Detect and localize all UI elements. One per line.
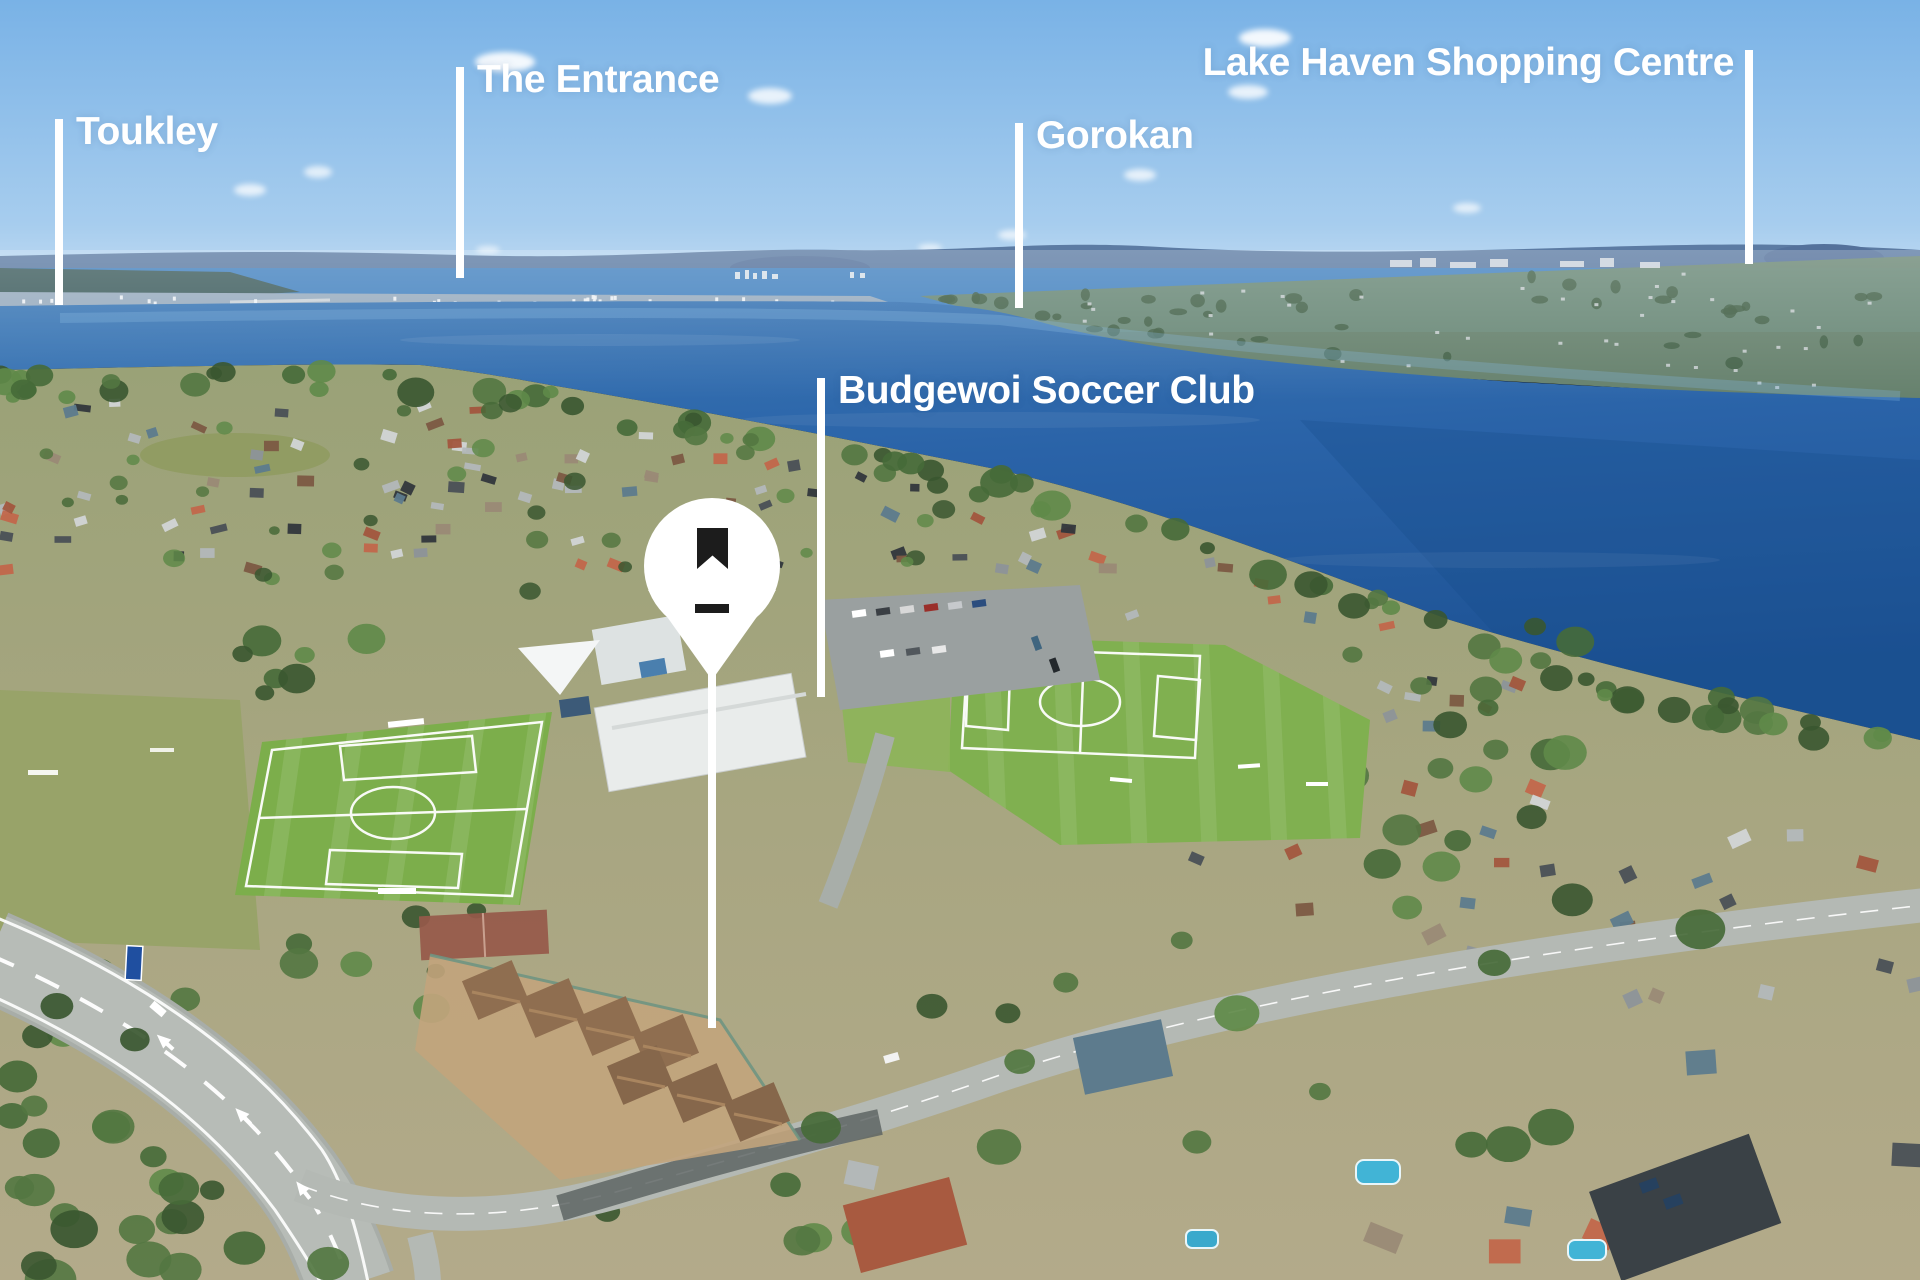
swimming-pool xyxy=(1186,1230,1218,1248)
aerial-photo: Toukley The Entrance Gorokan Lake Haven … xyxy=(0,0,1920,1280)
courts xyxy=(419,910,549,961)
pointer-line xyxy=(1745,50,1753,264)
pointer-line xyxy=(817,378,825,697)
label-budgewoi-soccer-club: Budgewoi Soccer Club xyxy=(817,378,1255,697)
swimming-pool xyxy=(1356,1160,1400,1184)
label-text: Lake Haven Shopping Centre xyxy=(1203,43,1734,82)
label-the-entrance: The Entrance xyxy=(456,67,719,278)
label-gorokan: Gorokan xyxy=(1015,123,1194,308)
label-text: Toukley xyxy=(76,112,218,151)
paddock xyxy=(0,690,260,950)
label-lake-haven-shopping-centre: Lake Haven Shopping Centre xyxy=(1203,50,1753,264)
label-text: Budgewoi Soccer Club xyxy=(838,371,1255,410)
swimming-pool xyxy=(1568,1240,1606,1260)
label-toukley: Toukley xyxy=(55,119,218,305)
roadside-sign xyxy=(125,946,143,981)
pointer-line xyxy=(55,119,63,305)
label-text: The Entrance xyxy=(477,60,719,99)
pointer-line xyxy=(1015,123,1023,308)
label-text: Gorokan xyxy=(1036,116,1194,155)
pointer-line xyxy=(456,67,464,278)
